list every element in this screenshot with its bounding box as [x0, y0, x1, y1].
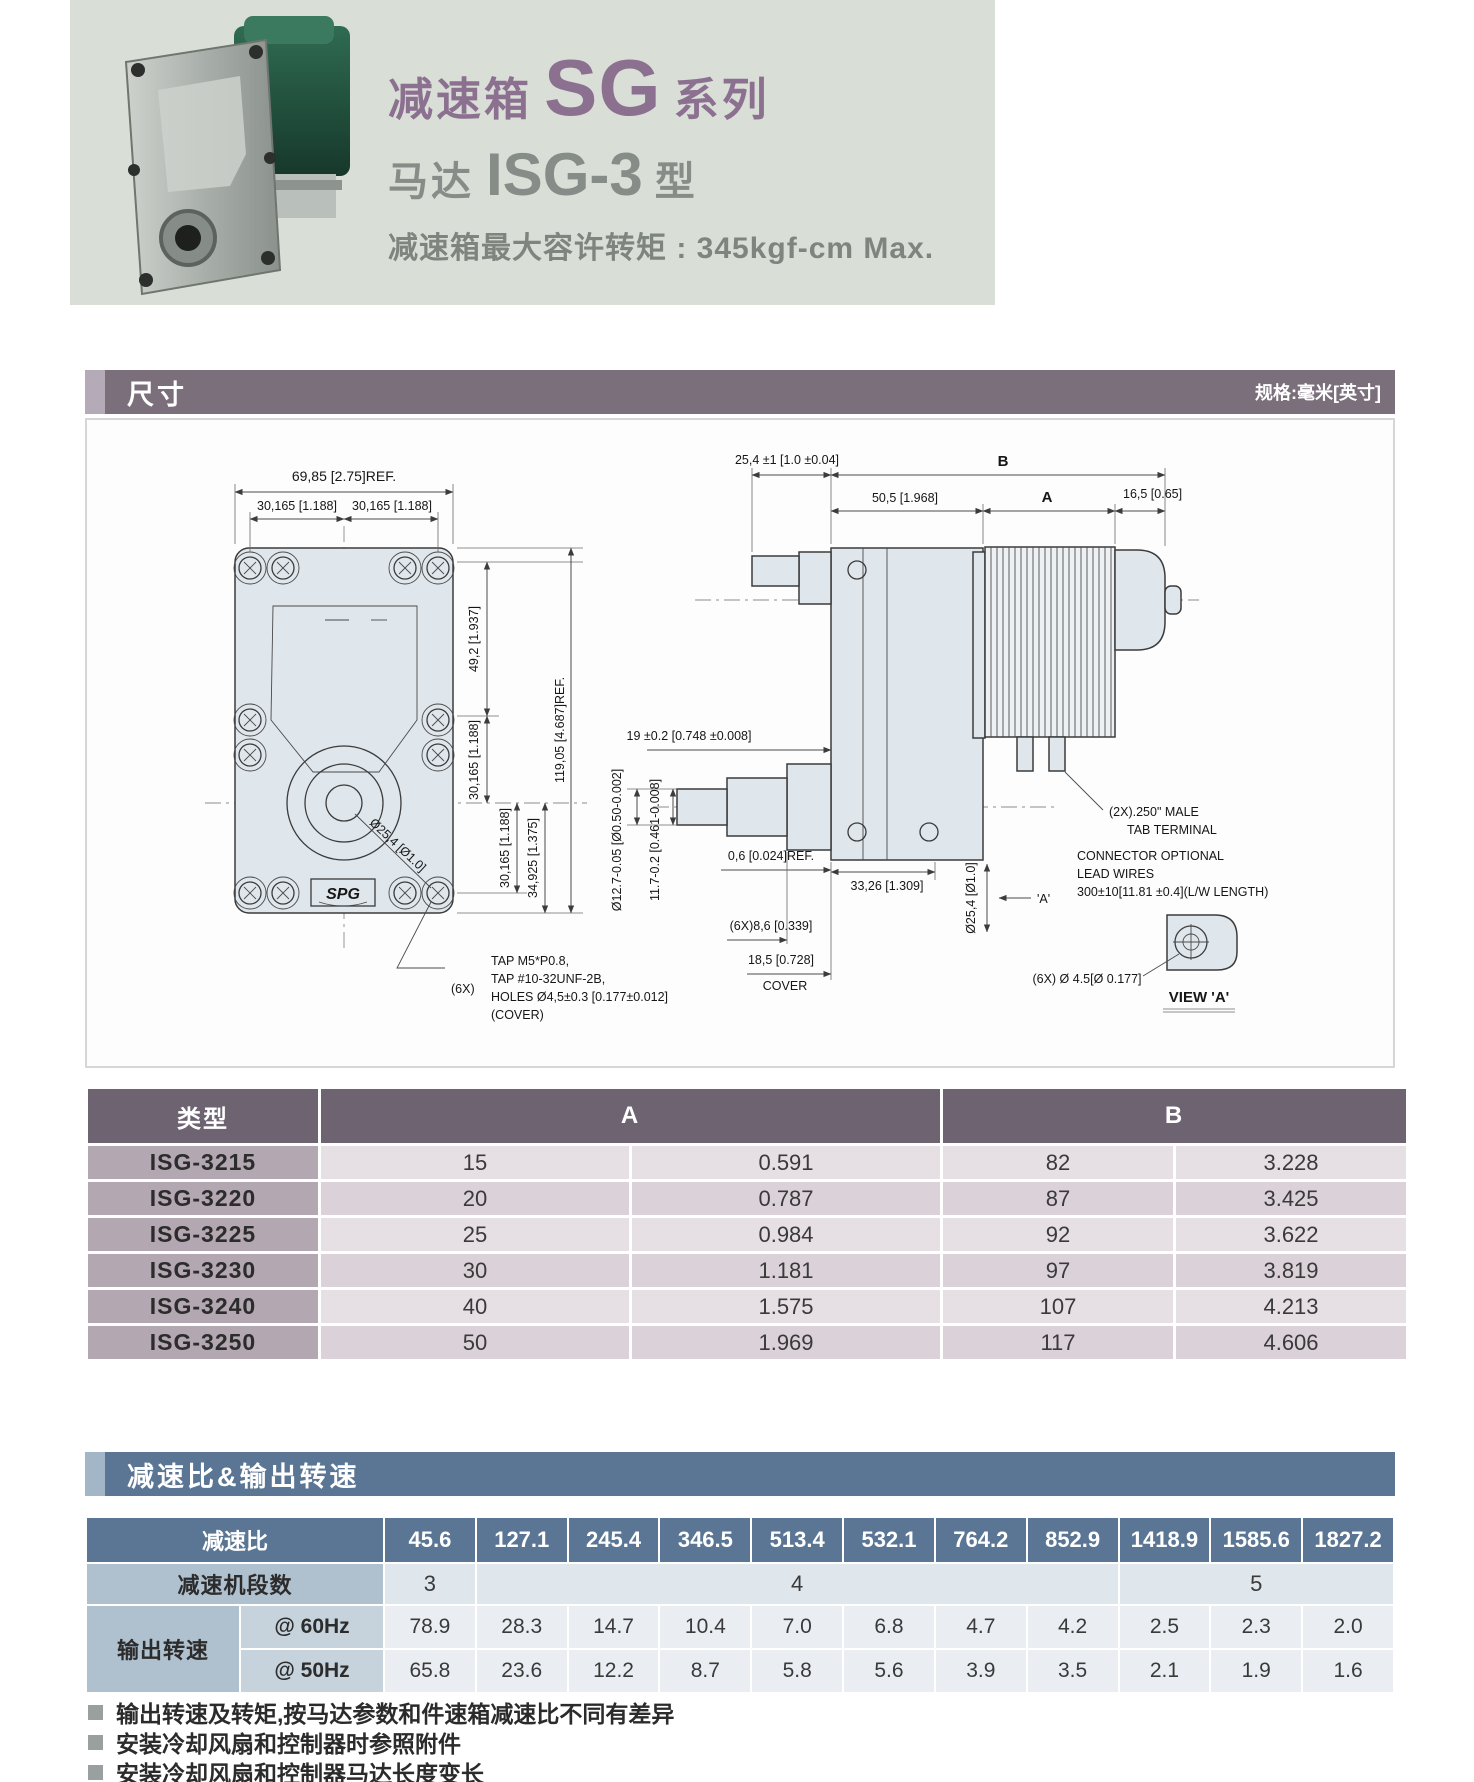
b-in-cell: 3.622 — [1176, 1218, 1406, 1251]
model-suffix: 型 — [655, 149, 698, 207]
speed-value: 65.8 — [385, 1650, 475, 1692]
b-mm-cell: 117 — [943, 1326, 1173, 1359]
a-in-cell: 1.969 — [632, 1326, 940, 1359]
a-mm-cell: 20 — [321, 1182, 629, 1215]
tap-note-1: TAP M5*P0.8, — [491, 954, 569, 968]
speed-value: 8.7 — [660, 1650, 750, 1692]
model-cell: ISG-3250 — [88, 1326, 318, 1359]
b-in-cell: 4.213 — [1176, 1290, 1406, 1323]
speed-value: 2.0 — [1303, 1606, 1393, 1648]
size-col-a: A — [321, 1089, 940, 1143]
speed-row-60hz: 输出转速 @ 60Hz 78.9 28.3 14.7 10.4 7.0 6.8 … — [87, 1606, 1393, 1648]
ratio-table: 减速比 45.6 127.1 245.4 346.5 513.4 532.1 7… — [85, 1516, 1395, 1694]
list-item: 输出转速及转矩,按马达参数和件速箱减速比不同有差异 — [88, 1697, 674, 1727]
series-code: SG — [544, 42, 662, 134]
speed-value: 2.1 — [1120, 1650, 1210, 1692]
dim-b-label: B — [998, 453, 1009, 470]
table-row: ISG-3215 15 0.591 82 3.228 — [88, 1146, 1406, 1179]
stages-label: 减速机段数 — [87, 1564, 383, 1604]
b-mm-cell: 107 — [943, 1290, 1173, 1323]
b-mm-cell: 87 — [943, 1182, 1173, 1215]
table-row: ISG-3225 25 0.984 92 3.622 — [88, 1218, 1406, 1251]
ratio-value: 1585.6 — [1211, 1518, 1301, 1562]
conn-note-3: 300±10[11.81 ±0.4](L/W LENGTH) — [1077, 885, 1268, 899]
a-in-cell: 0.591 — [632, 1146, 940, 1179]
table-row: ISG-3220 20 0.787 87 3.425 — [88, 1182, 1406, 1215]
datasheet-page: 减速箱 SG 系列 马达 ISG-3 型 减速箱最大容许转矩 : 345kgf-… — [0, 0, 1474, 1782]
speed-value: 23.6 — [477, 1650, 567, 1692]
model-cell: ISG-3220 — [88, 1182, 318, 1215]
speed-value: 2.3 — [1211, 1606, 1301, 1648]
torque-line: 减速箱最大容许转矩 : 345kgf-cm Max. — [388, 223, 934, 267]
speed-value: 10.4 — [660, 1606, 750, 1648]
view-a-title: VIEW 'A' — [1169, 989, 1229, 1006]
a-mm-cell: 15 — [321, 1146, 629, 1179]
ratio-section-title: 减速比&输出转速 — [127, 1455, 360, 1494]
dim-side-86: (6X)8,6 [0.339] — [730, 919, 813, 933]
speed-row-50hz: @ 50Hz 65.8 23.6 12.2 8.7 5.8 5.6 3.9 3.… — [87, 1650, 1393, 1692]
product-photo — [84, 6, 374, 298]
speed-value: 5.6 — [844, 1650, 934, 1692]
dim-side-fan-len: 16,5 [0.65] — [1123, 487, 1182, 501]
dim-v4: 34,925 [1.375] — [526, 818, 540, 898]
b-mm-cell: 92 — [943, 1218, 1173, 1251]
ratio-label: 减速比 — [87, 1518, 383, 1562]
dim-side-d254: Ø25,4 [Ø1.0] — [964, 862, 978, 934]
ratio-value: 1418.9 — [1120, 1518, 1210, 1562]
model-cell: ISG-3230 — [88, 1254, 318, 1287]
a-in-cell: 0.984 — [632, 1218, 940, 1251]
speed-value: 1.9 — [1211, 1650, 1301, 1692]
size-table-header: 类型 A B — [88, 1089, 1406, 1143]
dim-side-06: 0,6 [0.024]REF. — [728, 849, 814, 863]
speed-value: 5.8 — [752, 1650, 842, 1692]
section-accent — [85, 370, 105, 414]
tap-note-4: (COVER) — [491, 1008, 544, 1022]
dim-front-height: 119,05 [4.687]REF. — [553, 677, 567, 783]
speed-value: 7.0 — [752, 1606, 842, 1648]
note-bullet-icon — [88, 1735, 103, 1750]
a-in-cell: 0.787 — [632, 1182, 940, 1215]
size-col-b: B — [943, 1089, 1406, 1143]
a-in-cell: 1.181 — [632, 1254, 940, 1287]
speed-value: 12.2 — [569, 1650, 659, 1692]
a-mm-cell: 50 — [321, 1326, 629, 1359]
list-item: 安装冷却风扇和控制器马达长度变长 — [88, 1757, 674, 1782]
ratio-value: 532.1 — [844, 1518, 934, 1562]
a-mm-cell: 25 — [321, 1218, 629, 1251]
dim-side-gear-len: 50,5 [1.968] — [872, 491, 938, 505]
ratio-header-row: 减速比 45.6 127.1 245.4 346.5 513.4 532.1 7… — [87, 1518, 1393, 1562]
size-col-type: 类型 — [88, 1089, 318, 1143]
a-in-cell: 1.575 — [632, 1290, 940, 1323]
speed-value: 3.5 — [1028, 1650, 1118, 1692]
speed-value: 3.9 — [936, 1650, 1026, 1692]
front-view: SPG 69,85 [2.75]REF. 30,165 [1.188] 30,1… — [205, 468, 668, 1022]
tap-note-qty: (6X) — [451, 982, 475, 996]
dim-v2: 30,165 [1.188] — [467, 720, 481, 800]
dim-side-d127: Ø12.7-0.05 [Ø0.50-0.002] — [610, 769, 624, 911]
dim-front-width: 69,85 [2.75]REF. — [292, 468, 396, 484]
stages-row: 减速机段数 3 4 5 — [87, 1564, 1393, 1604]
dimensions-section-bar: 尺寸 规格:毫米[英寸] — [85, 370, 1395, 414]
tap-note-3: HOLES Ø4,5±0.3 [0.177±0.012] — [491, 990, 668, 1004]
label-cover: COVER — [763, 979, 807, 993]
list-item: 安装冷却风扇和控制器时参照附件 — [88, 1727, 674, 1757]
dim-side-3326: 33,26 [1.309] — [851, 879, 924, 893]
side-view: 25,4 ±1 [1.0 ±0.04] B 50,5 [1.968] A 16,… — [610, 453, 1268, 993]
ratio-value: 1827.2 — [1303, 1518, 1393, 1562]
dim-side-shaft-len: 25,4 ±1 [1.0 ±0.04] — [735, 453, 839, 467]
freq-label: @ 60Hz — [241, 1606, 383, 1648]
speed-value: 78.9 — [385, 1606, 475, 1648]
speed-value: 1.6 — [1303, 1650, 1393, 1692]
series-title: 减速箱 SG 系列 — [388, 42, 934, 134]
ratio-value: 852.9 — [1028, 1518, 1118, 1562]
stage-value: 5 — [1120, 1564, 1393, 1604]
table-row: ISG-3230 30 1.181 97 3.819 — [88, 1254, 1406, 1287]
size-table: 类型 A B ISG-3215 15 0.591 82 3.228 ISG-32… — [85, 1086, 1409, 1362]
table-row: ISG-3240 40 1.575 107 4.213 — [88, 1290, 1406, 1323]
dim-hole-right: 30,165 [1.188] — [352, 499, 432, 513]
tab-note-1: (2X).250" MALE — [1109, 805, 1199, 819]
series-suffix: 系列 — [674, 63, 770, 128]
title-block: 减速箱 SG 系列 马达 ISG-3 型 减速箱最大容许转矩 : 345kgf-… — [388, 42, 934, 267]
conn-note-1: CONNECTOR OPTIONAL — [1077, 849, 1224, 863]
table-row: ISG-3250 50 1.969 117 4.606 — [88, 1326, 1406, 1359]
speed-value: 14.7 — [569, 1606, 659, 1648]
output-speed-label: 输出转速 — [87, 1606, 239, 1692]
view-a-hole-note: (6X) Ø 4.5[Ø 0.177] — [1032, 972, 1141, 986]
note-text: 安装冷却风扇和控制器时参照附件 — [116, 1725, 461, 1759]
dim-v1: 49,2 [1.937] — [467, 606, 481, 672]
dim-v3: 30,165 [1.188] — [498, 808, 512, 888]
speed-value: 6.8 — [844, 1606, 934, 1648]
product-header: 减速箱 SG 系列 马达 ISG-3 型 减速箱最大容许转矩 : 345kgf-… — [70, 0, 995, 305]
stage-value: 3 — [385, 1564, 475, 1604]
tap-note-2: TAP #10-32UNF-2B, — [491, 972, 605, 986]
ratio-value: 764.2 — [936, 1518, 1026, 1562]
ratio-value: 513.4 — [752, 1518, 842, 1562]
output-shaft — [175, 225, 201, 251]
motor-cap — [244, 16, 334, 44]
speed-value: 2.5 — [1120, 1606, 1210, 1648]
model-prefix: 马达 — [388, 149, 474, 207]
model-cell: ISG-3215 — [88, 1146, 318, 1179]
section-accent — [85, 1452, 105, 1496]
series-prefix: 减速箱 — [388, 63, 532, 128]
note-bullet-icon — [88, 1765, 103, 1780]
b-mm-cell: 82 — [943, 1146, 1173, 1179]
note-bullet-icon — [88, 1705, 103, 1720]
b-in-cell: 3.819 — [1176, 1254, 1406, 1287]
dim-a-label: A — [1042, 489, 1053, 506]
stage-value: 4 — [477, 1564, 1118, 1604]
brand-logo: SPG — [326, 886, 360, 903]
ratio-value: 245.4 — [569, 1518, 659, 1562]
b-in-cell: 3.228 — [1176, 1146, 1406, 1179]
drawing-panel: SPG 69,85 [2.75]REF. 30,165 [1.188] 30,1… — [85, 418, 1395, 1068]
dimension-drawing: SPG 69,85 [2.75]REF. 30,165 [1.188] 30,1… — [87, 420, 1393, 1064]
dim-side-19: 19 ±0.2 [0.748 ±0.008] — [627, 729, 752, 743]
note-text: 安装冷却风扇和控制器马达长度变长 — [116, 1755, 484, 1782]
dimensions-section-title: 尺寸 — [127, 373, 187, 412]
conn-note-2: LEAD WIRES — [1077, 867, 1154, 881]
tab-note-2: TAB TERMINAL — [1127, 823, 1217, 837]
b-in-cell: 4.606 — [1176, 1326, 1406, 1359]
b-in-cell: 3.425 — [1176, 1182, 1406, 1215]
note-text: 输出转速及转矩,按马达参数和件速箱减速比不同有差异 — [116, 1695, 674, 1729]
ratio-value: 346.5 — [660, 1518, 750, 1562]
plate-emboss — [158, 76, 246, 192]
a-mm-cell: 30 — [321, 1254, 629, 1287]
a-mm-cell: 40 — [321, 1290, 629, 1323]
dim-side-117: 11.7-0.2 [0.461-0.008] — [648, 779, 662, 901]
speed-value: 4.2 — [1028, 1606, 1118, 1648]
model-title: 马达 ISG-3 型 — [388, 140, 934, 209]
model-cell: ISG-3240 — [88, 1290, 318, 1323]
dim-hole-left: 30,165 [1.188] — [257, 499, 337, 513]
speed-value: 4.7 — [936, 1606, 1026, 1648]
ratio-value: 45.6 — [385, 1518, 475, 1562]
ratio-value: 127.1 — [477, 1518, 567, 1562]
unit-note: 规格:毫米[英寸] — [1255, 379, 1381, 405]
ratio-section-bar: 减速比&输出转速 — [85, 1452, 1395, 1496]
label-a-ref: 'A' — [1037, 892, 1050, 906]
dim-side-185: 18,5 [0.728] — [748, 953, 814, 967]
model-cell: ISG-3225 — [88, 1218, 318, 1251]
view-a-detail: (6X) Ø 4.5[Ø 0.177] VIEW 'A' — [1032, 915, 1237, 1012]
speed-value: 28.3 — [477, 1606, 567, 1648]
freq-label: @ 50Hz — [241, 1650, 383, 1692]
footnotes: 输出转速及转矩,按马达参数和件速箱减速比不同有差异 安装冷却风扇和控制器时参照附… — [88, 1697, 674, 1782]
b-mm-cell: 97 — [943, 1254, 1173, 1287]
model-code: ISG-3 — [486, 140, 643, 209]
